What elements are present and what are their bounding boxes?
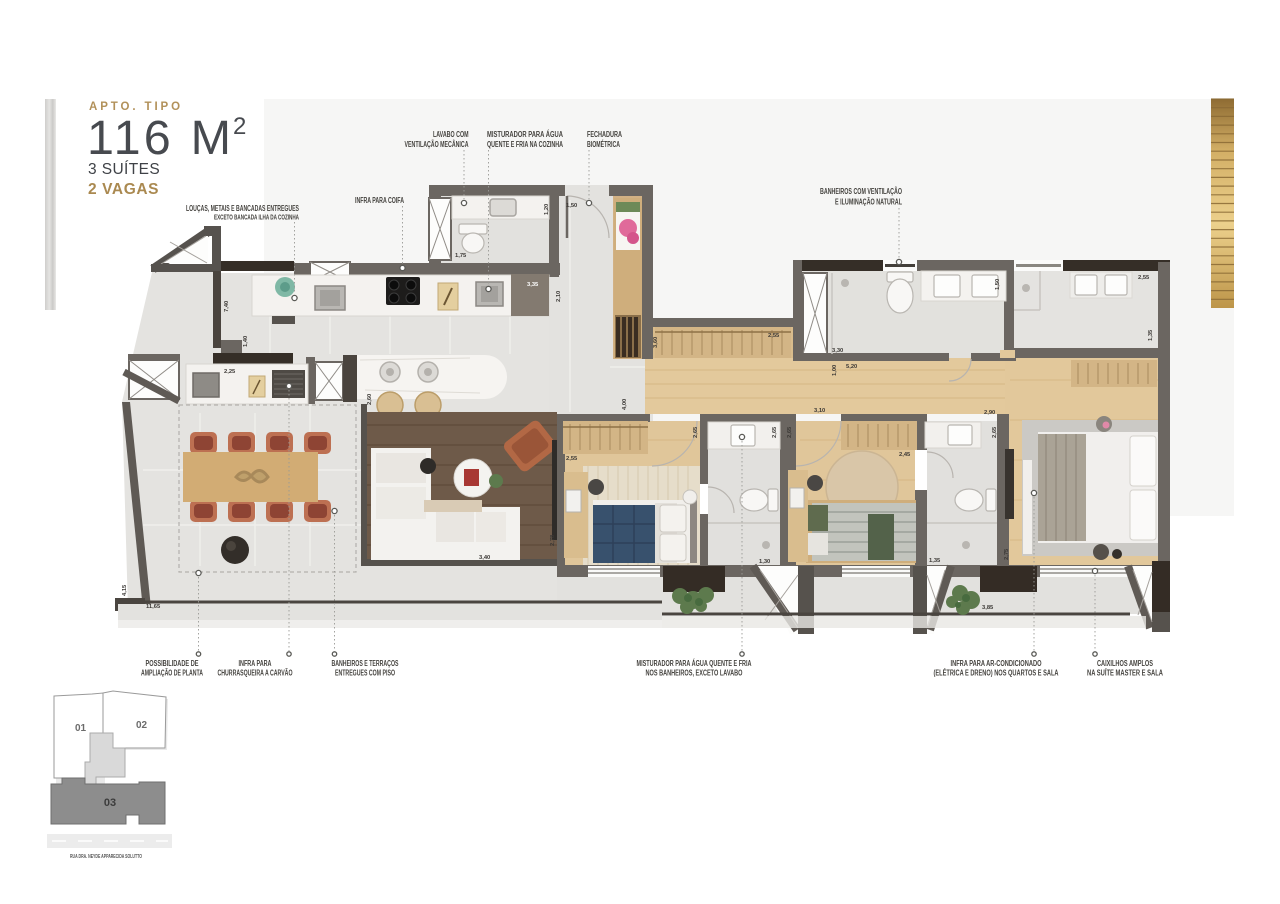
svg-text:RUA DRA. NEYDE APPARECIDA SOLU: RUA DRA. NEYDE APPARECIDA SOLUTTO	[70, 854, 142, 860]
svg-text:2,10: 2,10	[556, 291, 562, 302]
svg-text:01: 01	[75, 723, 87, 734]
svg-text:VENTILAÇÃO MECÂNICA: VENTILAÇÃO MECÂNICA	[405, 140, 469, 149]
svg-text:LAVABO COM: LAVABO COM	[433, 130, 469, 139]
svg-text:3,10: 3,10	[814, 408, 825, 414]
svg-text:4,15: 4,15	[122, 584, 128, 596]
svg-text:1,75: 1,75	[455, 253, 467, 259]
svg-text:2,65: 2,65	[772, 426, 778, 438]
svg-text:2,75: 2,75	[1004, 548, 1010, 560]
svg-text:1,00: 1,00	[832, 365, 838, 376]
svg-text:7,40: 7,40	[224, 301, 230, 312]
svg-text:2,45: 2,45	[899, 452, 911, 458]
svg-text:EXCETO BANCADA ILHA DA COZINHA: EXCETO BANCADA ILHA DA COZINHA	[214, 215, 299, 222]
svg-text:11,65: 11,65	[146, 604, 161, 610]
svg-text:1,20: 1,20	[544, 204, 550, 215]
svg-text:2,25: 2,25	[224, 369, 236, 375]
svg-text:2,55: 2,55	[1138, 275, 1150, 281]
svg-text:116 M: 116 M	[87, 111, 234, 165]
svg-text:MISTURADOR PARA ÁGUA QUENTE E: MISTURADOR PARA ÁGUA QUENTE E FRIA	[637, 659, 752, 668]
svg-text:2 VAGAS: 2 VAGAS	[88, 181, 159, 198]
svg-text:02: 02	[136, 720, 148, 731]
svg-text:2,65: 2,65	[992, 426, 998, 438]
svg-text:MISTURADOR PARA ÁGUA: MISTURADOR PARA ÁGUA	[487, 130, 563, 139]
svg-text:NA SUÍTE MASTER E SALA: NA SUÍTE MASTER E SALA	[1087, 669, 1163, 678]
svg-text:2: 2	[233, 113, 246, 140]
svg-text:2,65: 2,65	[693, 426, 699, 438]
svg-text:1,50: 1,50	[995, 279, 1001, 290]
svg-text:4,00: 4,00	[622, 399, 628, 410]
svg-text:1,50: 1,50	[566, 203, 577, 209]
svg-text:BANHEIROS COM VENTILAÇÃO: BANHEIROS COM VENTILAÇÃO	[820, 187, 902, 196]
svg-text:2,55: 2,55	[566, 456, 578, 462]
svg-text:3,60: 3,60	[653, 337, 659, 348]
svg-text:1,35: 1,35	[1148, 329, 1154, 341]
svg-text:1,40: 1,40	[243, 336, 249, 347]
svg-text:ENTREGUES COM PISO: ENTREGUES COM PISO	[335, 669, 395, 678]
svg-text:3,35: 3,35	[527, 282, 539, 288]
svg-text:BANHEIROS E TERRAÇOS: BANHEIROS E TERRAÇOS	[332, 659, 399, 668]
svg-text:POSSIBILIDADE DE: POSSIBILIDADE DE	[146, 659, 199, 668]
svg-text:2,55: 2,55	[768, 333, 780, 339]
svg-text:E ILUMINAÇÃO NATURAL: E ILUMINAÇÃO NATURAL	[835, 198, 902, 207]
svg-text:INFRA PARA COIFA: INFRA PARA COIFA	[355, 196, 404, 205]
svg-text:2,60: 2,60	[367, 394, 373, 405]
svg-text:NOS BANHEIROS, EXCETO LAVABO: NOS BANHEIROS, EXCETO LAVABO	[646, 669, 743, 678]
svg-text:QUENTE E FRIA NA COZINHA: QUENTE E FRIA NA COZINHA	[487, 140, 563, 149]
svg-text:1,30: 1,30	[759, 559, 770, 565]
svg-text:CAIXILHOS AMPLOS: CAIXILHOS AMPLOS	[1097, 659, 1153, 668]
svg-text:03: 03	[104, 797, 116, 809]
svg-text:3 SUÍTES: 3 SUÍTES	[88, 161, 160, 178]
svg-text:2,90: 2,90	[984, 410, 995, 416]
svg-text:1,35: 1,35	[929, 558, 941, 564]
svg-text:2,78: 2,78	[550, 534, 556, 546]
svg-text:INFRA PARA AR-CONDICIONADO: INFRA PARA AR-CONDICIONADO	[951, 659, 1042, 668]
svg-text:2,65: 2,65	[787, 426, 793, 438]
svg-text:FECHADURA: FECHADURA	[587, 130, 622, 139]
svg-text:(ELÉTRICA E DRENO) NOS QUARTOS: (ELÉTRICA E DRENO) NOS QUARTOS E SALA	[934, 669, 1059, 678]
svg-text:3,30: 3,30	[832, 348, 843, 354]
svg-text:AMPLIAÇÃO DE PLANTA: AMPLIAÇÃO DE PLANTA	[141, 669, 203, 678]
svg-text:LOUÇAS, METAIS E BANCADAS ENTR: LOUÇAS, METAIS E BANCADAS ENTREGUES	[186, 204, 299, 213]
svg-text:CHURRASQUEIRA A CARVÃO: CHURRASQUEIRA A CARVÃO	[218, 669, 293, 678]
svg-text:5,20: 5,20	[846, 364, 857, 370]
svg-text:3,85: 3,85	[982, 605, 994, 611]
svg-text:BIOMÉTRICA: BIOMÉTRICA	[587, 140, 620, 149]
svg-text:INFRA PARA: INFRA PARA	[239, 659, 272, 668]
svg-text:3,40: 3,40	[479, 555, 490, 561]
